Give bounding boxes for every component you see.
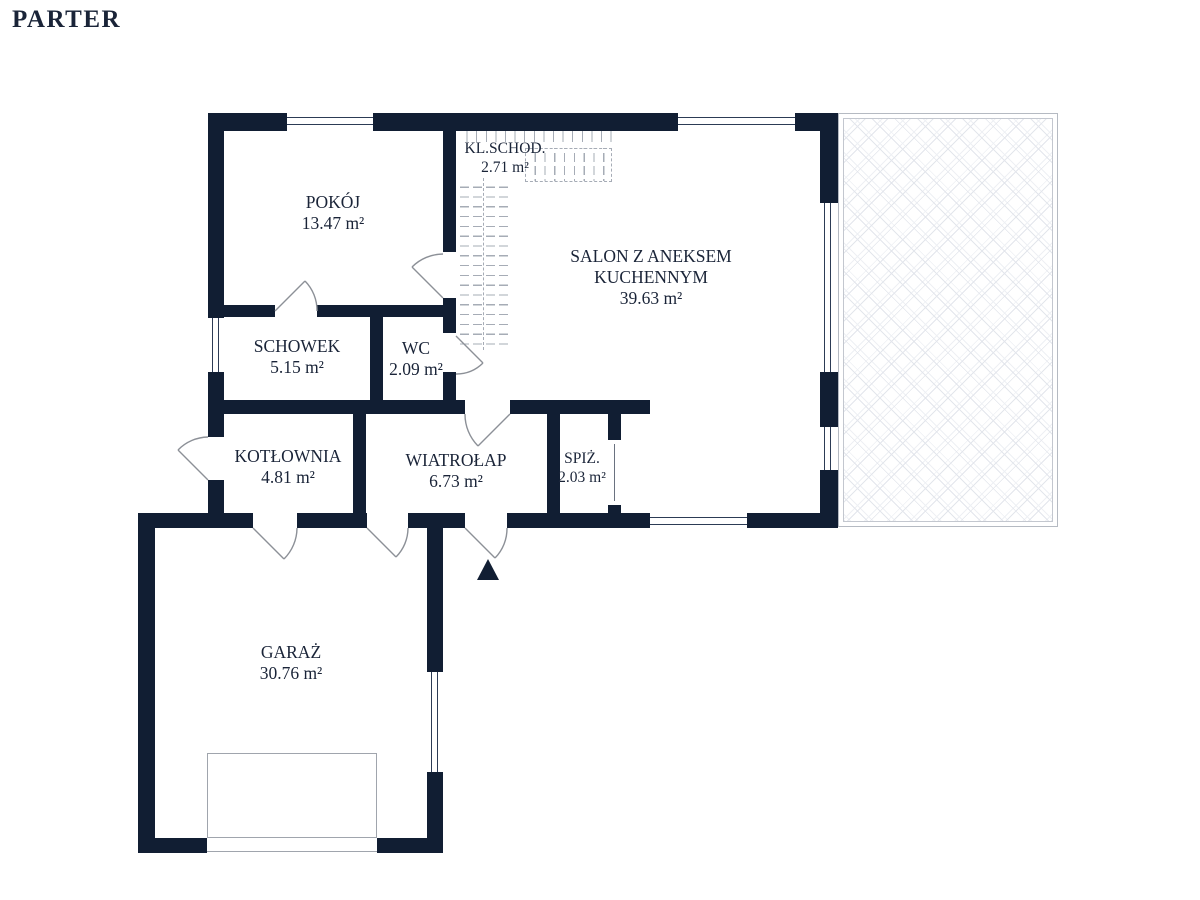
floor-plan: PARTER — [0, 0, 1200, 900]
room-name: GARAŻ — [191, 642, 391, 663]
stairs-lower-flight — [456, 178, 512, 350]
room-area: 39.63 m² — [551, 288, 751, 309]
room-name: WIATROŁAP — [366, 450, 546, 471]
room-name: SPIŻ. — [542, 449, 622, 468]
door-gap-main-entrance — [465, 513, 507, 528]
room-label-salon: SALON Z ANEKSEM KUCHENNYM 39.63 m² — [551, 246, 751, 309]
wall-garage-left — [138, 513, 155, 853]
window-bottom-salon — [650, 513, 747, 528]
room-label-spiz: SPIŻ. 2.03 m² — [542, 449, 622, 487]
room-area: 2.71 m² — [445, 158, 565, 177]
garage-door-sill — [207, 851, 377, 852]
room-area: 2.09 m² — [376, 359, 456, 380]
room-name: SCHOWEK — [217, 336, 377, 357]
entrance-arrow-icon — [477, 559, 499, 580]
door-gap-wiatrolap-salon — [465, 400, 510, 414]
room-area: 30.76 m² — [191, 663, 391, 684]
room-name: POKÓJ — [233, 192, 433, 213]
window-top-1 — [287, 113, 373, 131]
room-label-kotlownia: KOTŁOWNIA 4.81 m² — [208, 446, 368, 488]
terrace-area — [838, 113, 1058, 527]
room-label-kl-schod: KL.SCHOD. 2.71 m² — [445, 139, 565, 177]
door-gap-kotlownia-garage — [253, 513, 297, 528]
room-name: WC — [376, 338, 456, 359]
garage-door-panel — [207, 753, 377, 838]
room-label-wc: WC 2.09 m² — [376, 338, 456, 380]
window-right-salon-tall — [820, 203, 838, 372]
door-swing-wiatrolap-salon — [465, 414, 510, 446]
room-label-garaz: GARAŻ 30.76 m² — [191, 642, 391, 684]
wall-pokoj-bottom — [208, 305, 456, 317]
wall-band-c-top — [208, 400, 650, 414]
room-label-pokoj: POKÓJ 13.47 m² — [233, 192, 433, 234]
door-gap-wiatrolap-garage — [367, 513, 408, 528]
room-label-schowek: SCHOWEK 5.15 m² — [217, 336, 377, 378]
door-gap-pokoj-salon — [443, 252, 456, 298]
door-swing-main-entrance — [465, 528, 507, 558]
door-swing-pokoj-salon — [412, 254, 443, 298]
window-top-2 — [678, 113, 795, 131]
room-name: KL.SCHOD. — [445, 139, 565, 158]
door-swing-wiatrolap-garage — [367, 528, 408, 557]
room-area: 13.47 m² — [233, 213, 433, 234]
room-area: 4.81 m² — [208, 467, 368, 488]
room-area: 2.03 m² — [542, 468, 622, 487]
room-name: KOTŁOWNIA — [208, 446, 368, 467]
door-swing-kotlownia-garage — [253, 528, 297, 559]
window-right-salon-small — [820, 427, 838, 470]
door-swing-kotlownia-exterior — [178, 437, 208, 480]
terrace-hatch-pattern — [843, 118, 1053, 522]
door-gap-pokoj-bottom — [275, 305, 317, 317]
room-area: 5.15 m² — [217, 357, 377, 378]
floor-title: PARTER — [12, 6, 121, 34]
room-name-line2: KUCHENNYM — [551, 267, 751, 288]
room-name: SALON Z ANEKSEM — [551, 246, 751, 267]
room-area: 6.73 m² — [366, 471, 546, 492]
window-garage-right — [427, 672, 443, 772]
room-label-wiatrolap: WIATROŁAP 6.73 m² — [366, 450, 546, 492]
stairs-center-line — [483, 178, 484, 350]
